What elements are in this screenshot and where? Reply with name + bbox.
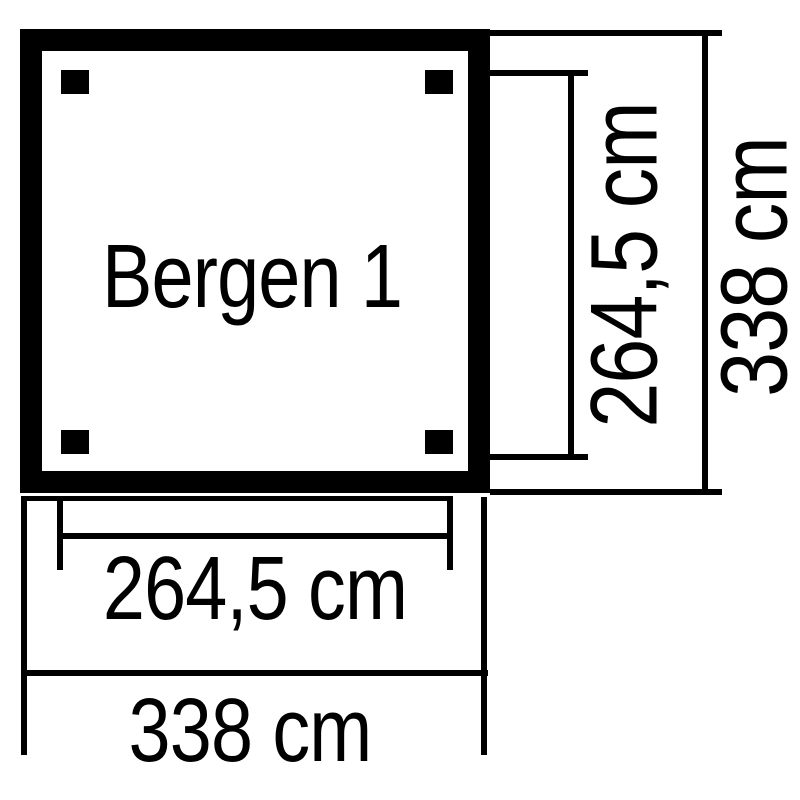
bottom-outer-tick-left bbox=[21, 496, 27, 755]
bottom-inner-dimension-label: 264,5 cm bbox=[103, 544, 407, 634]
bottom-outer-dimension-label: 338 cm bbox=[129, 686, 372, 776]
post-bottom-left bbox=[61, 430, 89, 454]
bottom-outer-tick-right bbox=[481, 497, 487, 755]
post-bottom-right bbox=[425, 430, 453, 454]
plan-title: Bergen 1 bbox=[102, 232, 402, 322]
side-inner-dimension-label: 264,5 cm bbox=[578, 102, 673, 427]
post-top-right bbox=[425, 70, 453, 94]
side-outer-dimension-label: 338 cm bbox=[708, 137, 800, 397]
dimension-diagram: { "colors": { "line": "#000000", "backgr… bbox=[0, 0, 800, 800]
post-top-left bbox=[61, 70, 89, 94]
side-outer-extension-top bbox=[490, 30, 722, 36]
side-outer-extension-bottom bbox=[490, 489, 722, 495]
bottom-extension-connector bbox=[21, 496, 453, 501]
bottom-outer-dimension-line bbox=[21, 670, 488, 676]
